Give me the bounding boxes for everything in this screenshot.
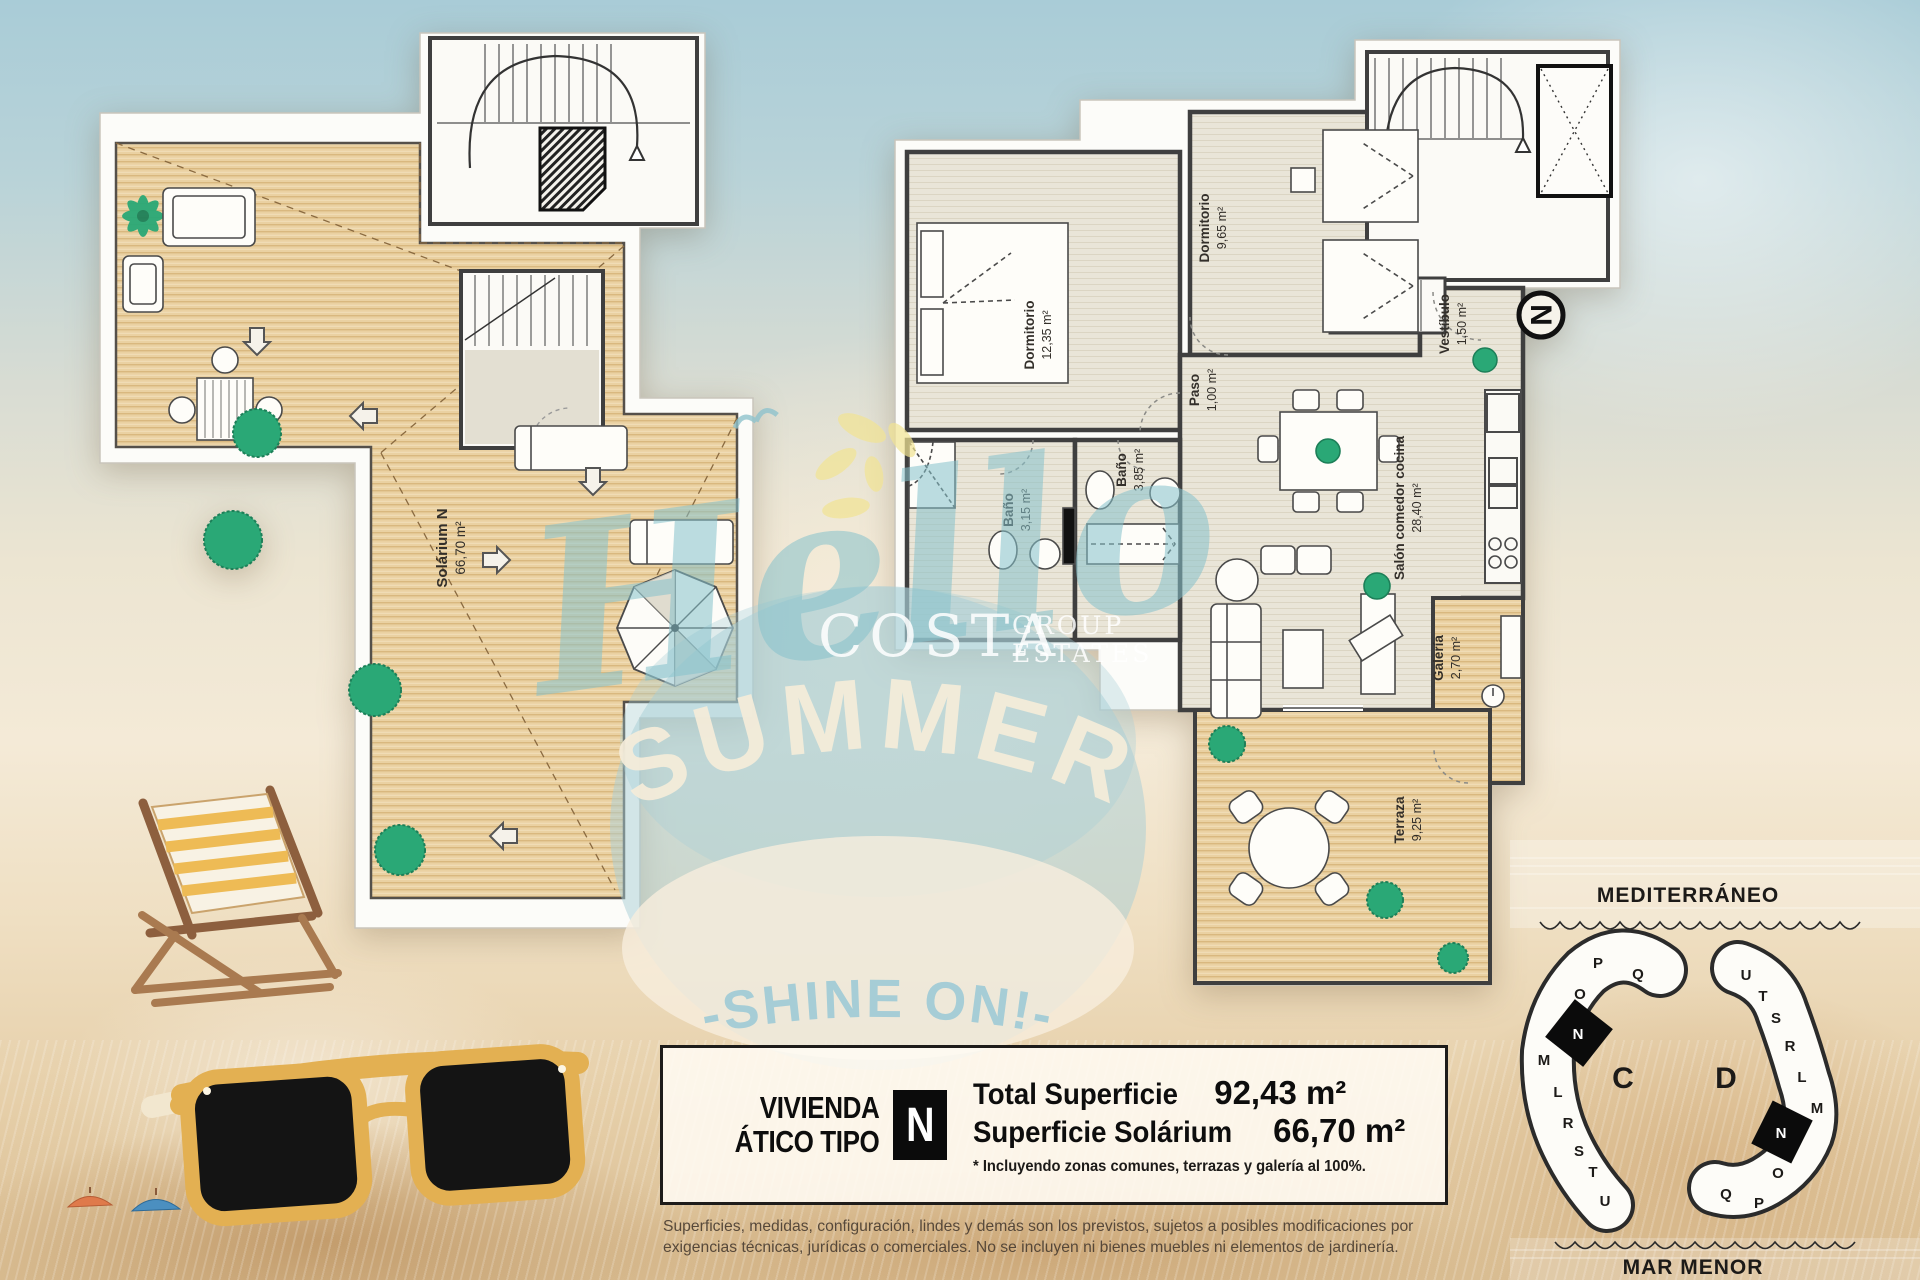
brand-watermark: COSTA GROUP ESTATES xyxy=(818,602,1152,670)
legal-disclaimer: Superficies, medidas, configuración, lin… xyxy=(663,1216,1447,1258)
unit-title-line1: VIVIENDA xyxy=(735,1091,880,1125)
brand-group: GROUP xyxy=(1012,611,1124,640)
unit-title-line2: ÁTICO TIPO xyxy=(735,1125,880,1159)
unit-title: VIVIENDA ÁTICO TIPO xyxy=(735,1091,880,1159)
solarium-surface-label: Superficie Solárium xyxy=(973,1116,1232,1150)
solarium-surface-value: 66,70 m² xyxy=(1273,1112,1405,1150)
unit-info-box: VIVIENDA ÁTICO TIPO N Total Superficie 9… xyxy=(660,1045,1448,1205)
surface-summary: Total Superficie 92,43 m² Superficie Sol… xyxy=(973,1074,1405,1176)
surface-note: * Incluyendo zonas comunes, terrazas y g… xyxy=(973,1158,1383,1176)
poster-background: Solárium N 66,70 m² xyxy=(0,0,1920,1280)
seagull-icon xyxy=(733,409,778,428)
unit-type-letter: N xyxy=(906,1098,934,1153)
total-surface-value: 92,43 m² xyxy=(1214,1074,1346,1112)
brand-estates: ESTATES xyxy=(1012,639,1152,668)
unit-type-badge: N xyxy=(893,1090,947,1160)
total-surface-label: Total Superficie xyxy=(973,1078,1178,1112)
